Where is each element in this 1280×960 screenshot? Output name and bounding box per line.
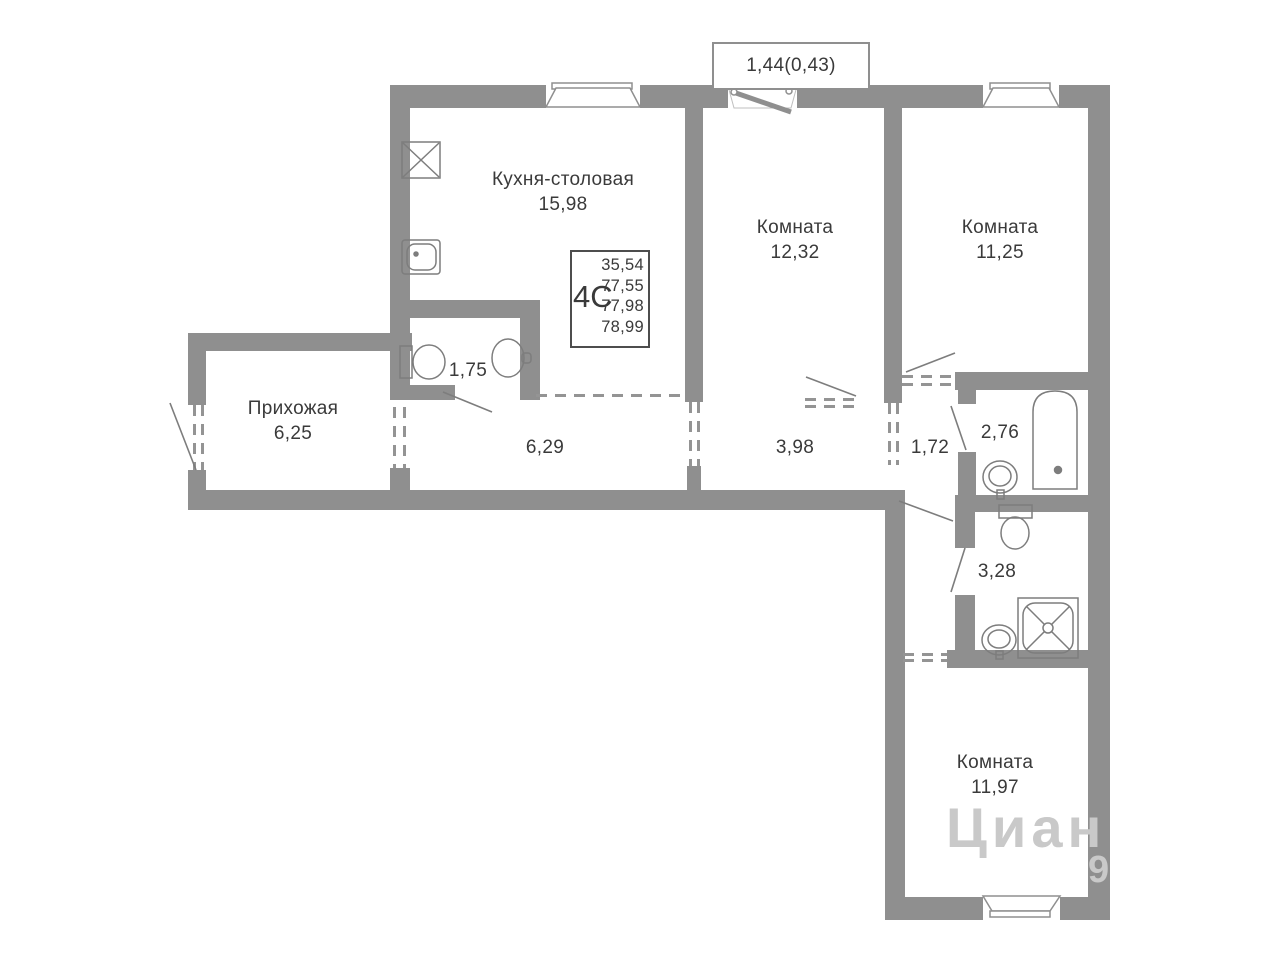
wall bbox=[884, 85, 902, 403]
wall bbox=[520, 300, 540, 400]
door-swing-line bbox=[806, 377, 856, 396]
shower-cabin-icon bbox=[1018, 598, 1078, 658]
door-opening bbox=[193, 405, 196, 470]
door-opening bbox=[403, 407, 406, 468]
apartment-info-box: 4С 35,54 77,55 77,98 78,99 bbox=[570, 250, 650, 348]
door-opening bbox=[393, 407, 396, 468]
area-value: 77,98 bbox=[601, 296, 644, 317]
room-name: Комната bbox=[705, 215, 885, 240]
room-label-bathroom: 2,76 bbox=[960, 420, 1040, 445]
wall bbox=[1060, 897, 1110, 920]
window bbox=[546, 83, 640, 107]
wall bbox=[958, 385, 976, 404]
wall bbox=[687, 466, 701, 492]
door-opening bbox=[903, 653, 947, 656]
area-value: 77,55 bbox=[601, 276, 644, 297]
room-name: Комната bbox=[905, 750, 1085, 775]
door-opening bbox=[689, 402, 692, 466]
floor-plan: 1,44(0,43) 4С 35,54 77,55 77,98 78,99 Ку… bbox=[0, 0, 1280, 960]
door-opening bbox=[902, 375, 955, 378]
wall bbox=[188, 333, 412, 351]
washbasin-icon bbox=[983, 461, 1017, 499]
wall bbox=[390, 85, 410, 400]
room-area: 11,25 bbox=[910, 240, 1090, 265]
room-label-wc: 1,75 bbox=[438, 358, 498, 383]
room-area: 15,98 bbox=[460, 192, 666, 217]
area-value: 78,99 bbox=[601, 317, 644, 338]
room-label-room-12-32: Комната 12,32 bbox=[705, 215, 885, 265]
room-area: 6,25 bbox=[203, 421, 383, 446]
room-label-corridor-6-29: 6,29 bbox=[505, 435, 585, 460]
wall bbox=[947, 650, 1110, 668]
door-swing-line bbox=[906, 353, 955, 372]
watermark: Циан 9 bbox=[946, 800, 1106, 856]
room-name: Прихожая bbox=[203, 396, 383, 421]
room-name: Комната bbox=[910, 215, 1090, 240]
door-opening bbox=[805, 405, 858, 408]
room-label-corridor-1-72: 1,72 bbox=[890, 435, 970, 460]
balcony-area-label: 1,44(0,43) bbox=[712, 42, 870, 90]
window bbox=[983, 896, 1060, 917]
wall bbox=[955, 512, 975, 548]
wall bbox=[390, 385, 455, 400]
door-opening bbox=[805, 398, 858, 401]
watermark-text: Циан bbox=[946, 796, 1106, 859]
door-swing-line bbox=[899, 501, 953, 521]
wall bbox=[955, 372, 1110, 390]
room-area: 12,32 bbox=[705, 240, 885, 265]
wall bbox=[885, 490, 905, 920]
wall bbox=[955, 495, 1110, 512]
room-label-corridor-3-98: 3,98 bbox=[755, 435, 835, 460]
room-label-room-11-97: Комната 11,97 bbox=[905, 750, 1085, 800]
area-value: 35,54 bbox=[601, 255, 644, 276]
door-opening bbox=[697, 402, 700, 466]
watermark-digit: 9 bbox=[1088, 842, 1109, 898]
room-label-room-11-25: Комната 11,25 bbox=[910, 215, 1090, 265]
wall bbox=[390, 300, 540, 318]
wall bbox=[188, 490, 905, 510]
room-label-kitchen: Кухня-столовая 15,98 bbox=[460, 167, 666, 217]
door-opening bbox=[903, 659, 947, 662]
wall bbox=[188, 333, 206, 405]
kitchen-corridor-boundary bbox=[536, 394, 686, 397]
room-name: Кухня-столовая bbox=[460, 167, 666, 192]
room-label-hallway: Прихожая 6,25 bbox=[203, 396, 383, 446]
wall bbox=[685, 85, 703, 402]
door-opening bbox=[902, 383, 955, 386]
window bbox=[983, 83, 1059, 107]
room-label-shower-room: 3,28 bbox=[957, 559, 1037, 584]
wall bbox=[390, 85, 546, 108]
apartment-areas: 35,54 77,55 77,98 78,99 bbox=[601, 255, 644, 337]
